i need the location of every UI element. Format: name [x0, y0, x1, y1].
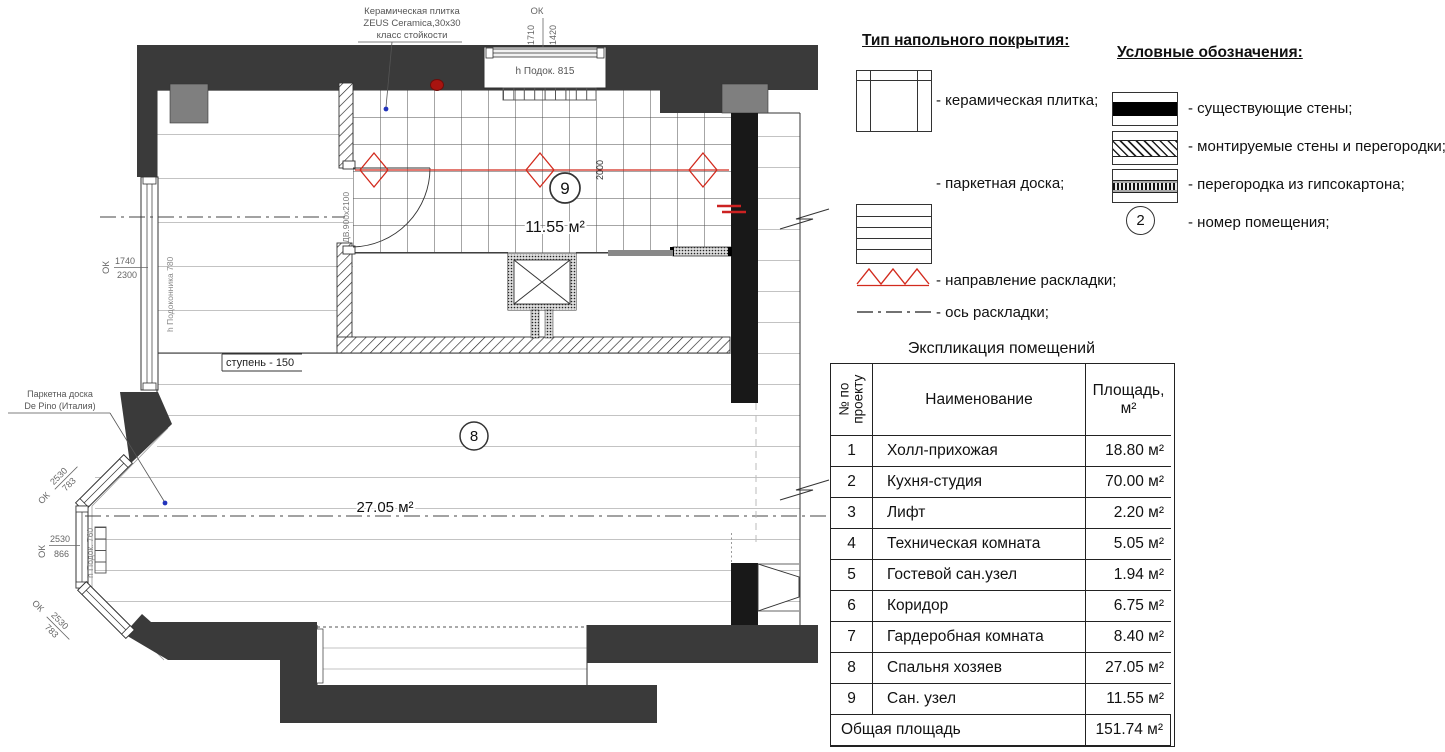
leader-dot-tile [384, 107, 389, 112]
svg-text:ДВ.900х2100: ДВ.900х2100 [341, 192, 351, 243]
svg-text:ОК: ОК [30, 598, 46, 614]
row-area: 11.55 м² [1086, 684, 1171, 715]
svg-text:2300: 2300 [117, 270, 137, 280]
row-name: Техническая комната [873, 529, 1086, 560]
row-num: 5 [831, 560, 873, 591]
schedule-header-num: № по проекту [831, 364, 873, 436]
ceramic-tile-label: - керамическая плитка; [936, 92, 1098, 109]
svg-text:8: 8 [470, 428, 478, 445]
black-wall-right [731, 113, 758, 403]
parquet-label: - паркетная доска; [936, 175, 1064, 192]
room-number-label: - номер помещения; [1188, 214, 1330, 231]
row-name: Гардеробная комната [873, 622, 1086, 653]
door-size-label: ДВ.900х2100 [341, 192, 351, 243]
schedule-total-label: Общая площадь [831, 715, 1086, 746]
svg-text:Паркетна доска: Паркетна доска [27, 389, 93, 399]
svg-text:ОК: ОК [101, 261, 112, 274]
row-name: Лифт [873, 498, 1086, 529]
schedule-table: № по проекту Наименование Площадь, м² 1 … [830, 363, 1175, 747]
bottom-niche [315, 625, 587, 685]
row-area: 2.20 м² [1086, 498, 1171, 529]
gypsum-partition-symbol [1112, 169, 1178, 203]
svg-text:De Pino (Италия): De Pino (Италия) [24, 401, 95, 411]
svg-text:1420: 1420 [548, 25, 558, 45]
layout-direction-label: - направление раскладки; [936, 272, 1116, 289]
row-num: 1 [831, 436, 873, 467]
row-name: Сан. узел [873, 684, 1086, 715]
row-num: 6 [831, 591, 873, 622]
dim-top-window: ОК 1710 1420 [526, 6, 558, 47]
row-area: 18.80 м² [1086, 436, 1171, 467]
schedule-header-area: Площадь, м² [1086, 364, 1171, 436]
symbols-legend-title: Условные обозначения: [1117, 44, 1303, 62]
room-number-symbol: 2 [1126, 206, 1155, 235]
pilaster-top-left [170, 84, 208, 123]
top-window: h Подок. 815 [484, 47, 606, 89]
svg-text:класс стойкости: класс стойкости [377, 30, 448, 41]
left-window [141, 177, 158, 390]
layout-direction-symbol [855, 264, 935, 288]
red-marker-dot [431, 80, 444, 91]
row-name: Гостевой сан.узел [873, 560, 1086, 591]
row-num: 3 [831, 498, 873, 529]
row-name: Кухня-студия [873, 467, 1086, 498]
row-num: 7 [831, 622, 873, 653]
schedule-total-area: 151.74 м² [1086, 715, 1171, 746]
svg-text:2000: 2000 [595, 160, 605, 180]
row-area: 5.05 м² [1086, 529, 1171, 560]
row-num: 8 [831, 653, 873, 684]
mounted-wall-symbol [1112, 131, 1178, 165]
svg-text:ZEUS Ceramica,30x30: ZEUS Ceramica,30x30 [363, 18, 460, 29]
svg-text:9: 9 [560, 179, 569, 198]
black-pier [731, 563, 758, 625]
row-area: 8.40 м² [1086, 622, 1171, 653]
floor-plan-drawing: h Подок. 815 [0, 0, 845, 752]
room9-area: 11.55 м² [525, 219, 585, 236]
schedule-title: Экспликация помещений [830, 340, 1173, 358]
existing-wall-symbol [1112, 92, 1178, 126]
layout-axis-label: - ось раскладки; [936, 304, 1049, 321]
top-window-sill-label: h Подок. 815 [516, 66, 575, 77]
schedule-header-name: Наименование [873, 364, 1086, 436]
svg-text:ОК: ОК [37, 545, 48, 558]
gypsum-partition-label: - перегородка из гипсокартона; [1188, 176, 1405, 193]
svg-text:h Подоконника 780: h Подоконника 780 [165, 256, 175, 332]
leader-dot-parquet [163, 501, 168, 506]
svg-text:Керамическая плитка: Керамическая плитка [364, 6, 460, 17]
svg-text:1710: 1710 [526, 25, 536, 45]
row-name: Холл-прихожая [873, 436, 1086, 467]
row-area: 27.05 м² [1086, 653, 1171, 684]
svg-text:h Подок. 760: h Подок. 760 [85, 528, 95, 578]
row-area: 70.00 м² [1086, 467, 1171, 498]
row-num: 9 [831, 684, 873, 715]
mounted-wall-label: - монтируемые стены и перегородки; [1188, 138, 1445, 155]
svg-text:1740: 1740 [115, 256, 135, 266]
svg-text:ступень - 150: ступень - 150 [226, 357, 294, 369]
dim-bay-bottom: ОК 2530 783 [24, 595, 77, 648]
room8-area: 27.05 м² [356, 499, 413, 516]
parquet-symbol [856, 204, 932, 264]
row-num: 4 [831, 529, 873, 560]
dim-bay-mid: ОК 2530 866 [37, 534, 80, 559]
row-area: 6.75 м² [1086, 591, 1171, 622]
row-num: 2 [831, 467, 873, 498]
svg-text:2530: 2530 [50, 534, 70, 544]
row-name: Спальня хозяев [873, 653, 1086, 684]
dim-2000: 2000 [595, 160, 605, 180]
svg-text:ОК: ОК [531, 6, 544, 17]
row-area: 1.94 м² [1086, 560, 1171, 591]
layout-axis-symbol [855, 306, 935, 318]
radiator-bay [95, 527, 106, 573]
existing-wall-label: - существующие стены; [1188, 100, 1352, 117]
svg-text:ОК: ОК [36, 490, 52, 506]
step-label: ступень - 150 [222, 354, 302, 371]
floor-plan-sheet: { "colors": { "wall_existing": "#3a3a3a"… [0, 0, 1445, 752]
pilaster-top-right [722, 84, 768, 113]
ceramic-tile-symbol [856, 70, 932, 132]
bay-sill-label: h Подок. 760 [85, 528, 95, 578]
flooring-legend-title: Тип напольного покрытия: [862, 32, 1069, 50]
row-name: Коридор [873, 591, 1086, 622]
radiator-top [503, 88, 596, 100]
svg-text:866: 866 [54, 549, 69, 559]
vent-shaft [508, 254, 576, 338]
